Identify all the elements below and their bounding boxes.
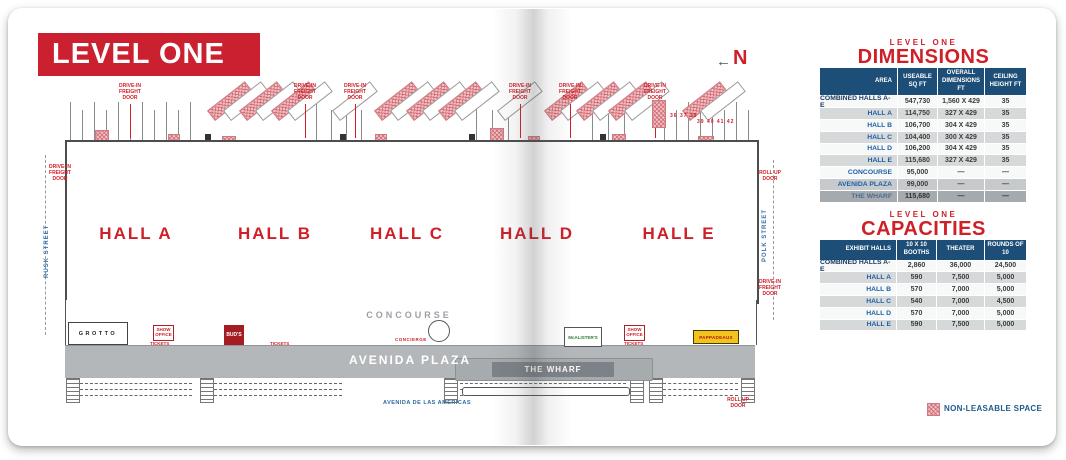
cell-value: 106,700 xyxy=(898,120,938,132)
column-header: ROUNDS OF 10 xyxy=(985,240,1027,261)
dock-numbers: 36 37 38 xyxy=(670,113,697,119)
page-title-text: LEVEL ONE xyxy=(52,38,225,71)
table-row: THE WHARF115,680—— xyxy=(820,191,1027,203)
door-arrow-line xyxy=(305,104,306,138)
cell-value: 4,500 xyxy=(985,296,1027,308)
row-label: CONCOURSE xyxy=(820,167,898,179)
drive-in-freight-door-label: DRIVE-IN FREIGHT DOOR xyxy=(291,84,319,101)
cell-value: 304 X 429 xyxy=(938,144,985,156)
column-header: OVERALL DIMENSIONS FT xyxy=(938,68,985,96)
table-row: HALL C104,400300 X 42935 xyxy=(820,132,1027,144)
walkway-dashed-line xyxy=(460,383,626,384)
mcalisters-label: McALISTER'S xyxy=(568,335,598,340)
cell-value: 327 X 429 xyxy=(938,155,985,167)
row-label: HALL B xyxy=(820,120,898,132)
cell-value: 35 xyxy=(985,144,1027,156)
table-row: HALL B106,700304 X 42935 xyxy=(820,120,1027,132)
brochure-spread: LEVEL ONE ← N HALL A HALL B HALL C HALL … xyxy=(0,0,1066,460)
column-header: 10 X 10 BOOTHS xyxy=(897,240,937,261)
cell-value: 570 xyxy=(897,284,937,296)
drive-in-freight-door-label: DRIVE-IN FREIGHT DOOR xyxy=(556,84,584,101)
walkway-dashed-line xyxy=(214,389,342,390)
buds-label: BUD'S xyxy=(226,332,241,338)
door-arrow-line xyxy=(570,104,571,138)
row-label: HALL E xyxy=(820,320,897,332)
cell-value: 2,860 xyxy=(897,261,937,273)
buds-restaurant: BUD'S xyxy=(224,325,244,345)
concourse-rotunda xyxy=(428,320,450,342)
door-arrow-line xyxy=(130,104,131,138)
north-label: N xyxy=(733,47,747,70)
row-label: HALL E xyxy=(820,155,898,167)
dock-wall-line xyxy=(190,102,191,140)
mcalisters-restaurant: McALISTER'S xyxy=(564,327,602,347)
dock-wall-line xyxy=(724,110,725,140)
the-wharf-label: THE WHARF xyxy=(492,362,614,377)
dock-numbers: 39 40 41 42 xyxy=(697,119,734,125)
cell-value: 590 xyxy=(897,272,937,284)
table-row: COMBINED HALLS A-E2,86036,00024,500 xyxy=(820,261,1027,273)
cell-value: 5,000 xyxy=(985,284,1027,296)
cell-value: — xyxy=(985,191,1027,203)
table-header-row: EXHIBIT HALLS10 X 10 BOOTHSTHEATERROUNDS… xyxy=(820,240,1027,261)
row-label: AVENIDA PLAZA xyxy=(820,179,898,191)
table-row: HALL E115,680327 X 42935 xyxy=(820,155,1027,167)
cell-value: 99,000 xyxy=(898,179,938,191)
row-label: THE WHARF xyxy=(820,191,898,203)
dock-wall-line xyxy=(142,102,143,140)
stairs xyxy=(649,378,663,403)
table-row: AVENIDA PLAZA99,000—— xyxy=(820,179,1027,191)
column-header: EXHIBIT HALLS xyxy=(820,240,897,261)
cell-value: 106,200 xyxy=(898,144,938,156)
tickets-label: TICKETS xyxy=(150,341,169,346)
exhibit-halls-outline xyxy=(65,140,759,304)
dock-wall-line xyxy=(154,110,155,140)
cell-value: — xyxy=(938,179,985,191)
hall-e-label: HALL E xyxy=(642,224,715,244)
cell-value: 7,000 xyxy=(937,296,985,308)
pappadeaux-restaurant: PAPPADEAUX xyxy=(693,330,739,344)
cell-value: 5,000 xyxy=(985,320,1027,332)
cell-value: — xyxy=(985,167,1027,179)
cell-value: 327 X 429 xyxy=(938,108,985,120)
column-header: THEATER xyxy=(937,240,985,261)
table-row: HALL A5907,5005,000 xyxy=(820,272,1027,284)
dock-wall-line xyxy=(748,110,749,140)
cell-value: — xyxy=(938,167,985,179)
wharf-walkway xyxy=(462,387,630,396)
cell-value: 35 xyxy=(985,108,1027,120)
dimensions-title: DIMENSIONS xyxy=(820,46,1027,69)
table-row: HALL D106,200304 X 42935 xyxy=(820,144,1027,156)
hall-d-label: HALL D xyxy=(500,224,574,244)
roll-up-door-label: ROLL UP DOOR xyxy=(724,398,752,410)
avenida-de-las-americas-label: AVENIDA DE LAS AMERICAS xyxy=(383,400,471,406)
walkway-dashed-line xyxy=(663,389,738,390)
walkway-dashed-line xyxy=(80,389,192,390)
concierge-label: CONCIERGE xyxy=(395,337,427,342)
north-arrow-icon: ← xyxy=(716,53,731,70)
table-row: HALL A114,750327 X 42935 xyxy=(820,108,1027,120)
cell-value: 7,000 xyxy=(937,284,985,296)
page-title: LEVEL ONE xyxy=(38,33,260,76)
show-office-box: SHOW OFFICE xyxy=(624,325,645,341)
hall-a-label: HALL A xyxy=(99,224,172,244)
row-label: HALL C xyxy=(820,296,897,308)
tickets-label: TICKETS xyxy=(624,341,643,346)
drive-in-freight-door-label: DRIVE-IN FREIGHT DOOR xyxy=(116,84,144,101)
stairs xyxy=(66,378,80,403)
cell-value: 304 X 429 xyxy=(938,120,985,132)
dimensions-table: AREAUSEABLE SQ FTOVERALL DIMENSIONS FTCE… xyxy=(820,68,1027,203)
dock-wall-line xyxy=(166,102,167,140)
cell-value: 7,000 xyxy=(937,308,985,320)
cell-value: 300 X 429 xyxy=(938,132,985,144)
cell-value: 95,000 xyxy=(898,167,938,179)
cell-value: 590 xyxy=(897,320,937,332)
row-label: COMBINED HALLS A-E xyxy=(820,96,898,108)
walkway-dashed-line xyxy=(663,383,738,384)
table-row: HALL E5907,5005,000 xyxy=(820,320,1027,332)
stairs xyxy=(200,378,214,403)
table-row: HALL C5407,0004,500 xyxy=(820,296,1027,308)
cell-value: 35 xyxy=(985,96,1027,108)
door-arrow-line xyxy=(355,104,356,138)
walkway-dashed-line xyxy=(80,383,192,384)
dock-wall-line xyxy=(331,110,332,140)
walkway-dashed-line xyxy=(80,395,192,396)
walkway-dashed-line xyxy=(663,395,738,396)
non-leasable-block xyxy=(652,100,666,128)
column-header: AREA xyxy=(820,68,898,96)
dock-wall-line xyxy=(82,110,83,140)
cell-value: 35 xyxy=(985,155,1027,167)
cell-value: 35 xyxy=(985,120,1027,132)
cell-value: 540 xyxy=(897,296,937,308)
door-arrow-line xyxy=(520,104,521,138)
row-label: HALL B xyxy=(820,284,897,296)
cell-value: 104,400 xyxy=(898,132,938,144)
stairs xyxy=(630,378,644,403)
row-label: HALL D xyxy=(820,144,898,156)
drive-in-freight-door-label: DRIVE-IN FREIGHT DOOR xyxy=(641,84,669,101)
polk-street-label: POLK STREET xyxy=(762,209,768,262)
row-label: HALL D xyxy=(820,308,897,320)
table-row: COMBINED HALLS A-E547,7301,560 X 42935 xyxy=(820,96,1027,108)
hall-c-label: HALL C xyxy=(370,224,444,244)
avenida-plaza-label: AVENIDA PLAZA xyxy=(349,353,471,367)
dock-wall-line xyxy=(736,102,737,140)
walkway-dashed-line xyxy=(214,395,342,396)
grotto-restaurant: GROTTO xyxy=(68,322,128,345)
cell-value: 1,560 X 429 xyxy=(938,96,985,108)
roll-up-door-label: ROLL UP DOOR xyxy=(756,171,784,183)
non-leasable-legend-label: NON-LEASABLE SPACE xyxy=(944,404,1042,413)
rusk-street-label: RUSK STREET xyxy=(44,225,50,278)
table-row: CONCOURSE95,000—— xyxy=(820,167,1027,179)
cell-value: 547,730 xyxy=(898,96,938,108)
row-label: HALL A xyxy=(820,108,898,120)
capacities-table: EXHIBIT HALLS10 X 10 BOOTHSTHEATERROUNDS… xyxy=(820,240,1027,331)
drive-in-freight-door-label: DRIVE-IN FREIGHT DOOR xyxy=(341,84,369,101)
table-row: HALL D5707,0005,000 xyxy=(820,308,1027,320)
tickets-label: TICKETS xyxy=(270,341,289,346)
hall-b-label: HALL B xyxy=(238,224,312,244)
drive-in-freight-door-label: DRIVE-IN FREIGHT DOOR xyxy=(46,165,74,182)
column-header: CEILING HEIGHT FT xyxy=(985,68,1027,96)
dock-wall-line xyxy=(361,110,362,140)
column-header: USEABLE SQ FT xyxy=(898,68,938,96)
concourse-label: CONCOURSE xyxy=(366,310,452,320)
non-leasable-swatch-icon xyxy=(927,403,940,416)
dock-wall-line xyxy=(316,102,317,140)
cell-value: — xyxy=(985,179,1027,191)
capacities-title: CAPACITIES xyxy=(820,218,1027,241)
row-label: COMBINED HALLS A-E xyxy=(820,261,897,273)
cell-value: 570 xyxy=(897,308,937,320)
table-row: HALL B5707,0005,000 xyxy=(820,284,1027,296)
cell-value: 115,680 xyxy=(898,191,938,203)
pappadeaux-label: PAPPADEAUX xyxy=(699,335,733,340)
cell-value: 115,680 xyxy=(898,155,938,167)
cell-value: 24,500 xyxy=(985,261,1027,273)
dock-wall-line xyxy=(70,102,71,140)
grotto-label: GROTTO xyxy=(79,331,117,337)
drive-in-freight-door-label: DRIVE-IN FREIGHT DOOR xyxy=(506,84,534,101)
cell-value: 35 xyxy=(985,132,1027,144)
cell-value: 7,500 xyxy=(937,272,985,284)
table-header-row: AREAUSEABLE SQ FTOVERALL DIMENSIONS FTCE… xyxy=(820,68,1027,96)
cell-value: 5,000 xyxy=(985,272,1027,284)
show-office-box: SHOW OFFICE xyxy=(153,325,174,341)
cell-value: 114,750 xyxy=(898,108,938,120)
cell-value: 36,000 xyxy=(937,261,985,273)
cell-value: — xyxy=(938,191,985,203)
drive-in-freight-door-label: DRIVE-IN FREIGHT DOOR xyxy=(756,280,784,297)
row-label: HALL C xyxy=(820,132,898,144)
row-label: HALL A xyxy=(820,272,897,284)
walkway-dashed-line xyxy=(214,383,342,384)
cell-value: 5,000 xyxy=(985,308,1027,320)
cell-value: 7,500 xyxy=(937,320,985,332)
dock-wall-line xyxy=(118,102,119,140)
